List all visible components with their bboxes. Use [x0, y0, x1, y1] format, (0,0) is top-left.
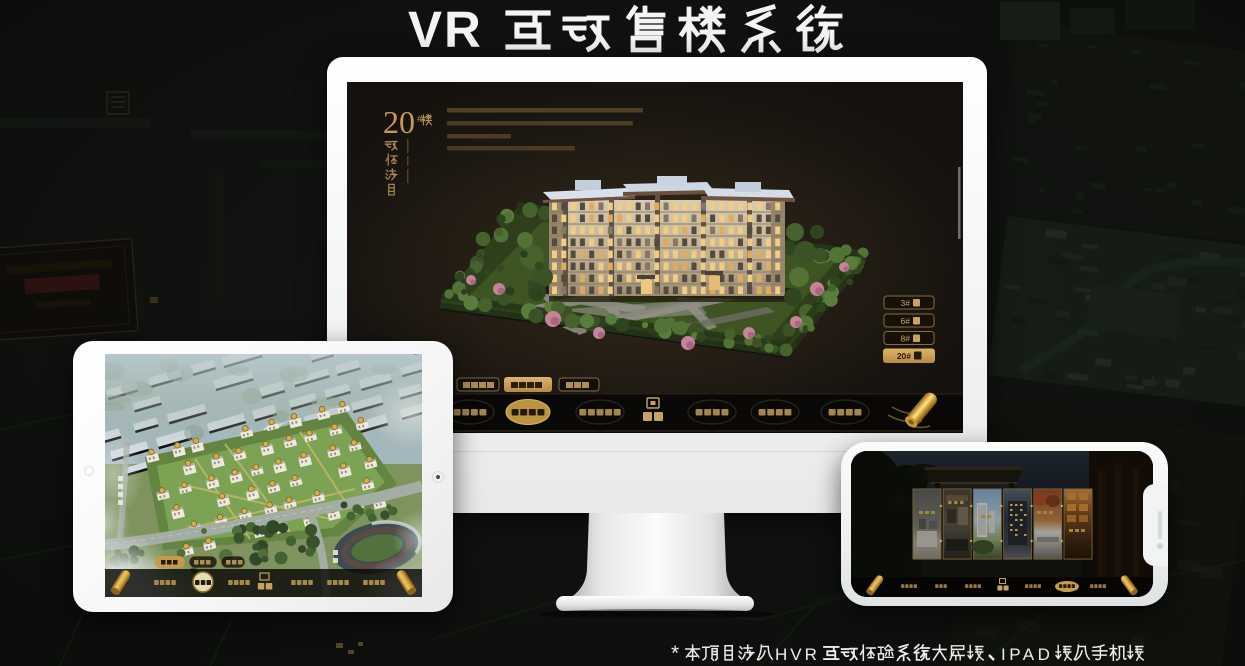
svg-text:VR: VR	[408, 1, 483, 58]
svg-text:20#: 20#	[897, 351, 911, 361]
svg-text:3#: 3#	[901, 298, 911, 308]
svg-text:8#: 8#	[901, 334, 911, 344]
svg-text:20: 20	[383, 104, 415, 140]
svg-text:6#: 6#	[901, 316, 911, 326]
svg-text:IPAD: IPAD	[1001, 645, 1053, 664]
svg-text:#: #	[417, 113, 423, 125]
svg-text:*: *	[671, 642, 679, 665]
svg-text:HVR: HVR	[775, 645, 820, 664]
